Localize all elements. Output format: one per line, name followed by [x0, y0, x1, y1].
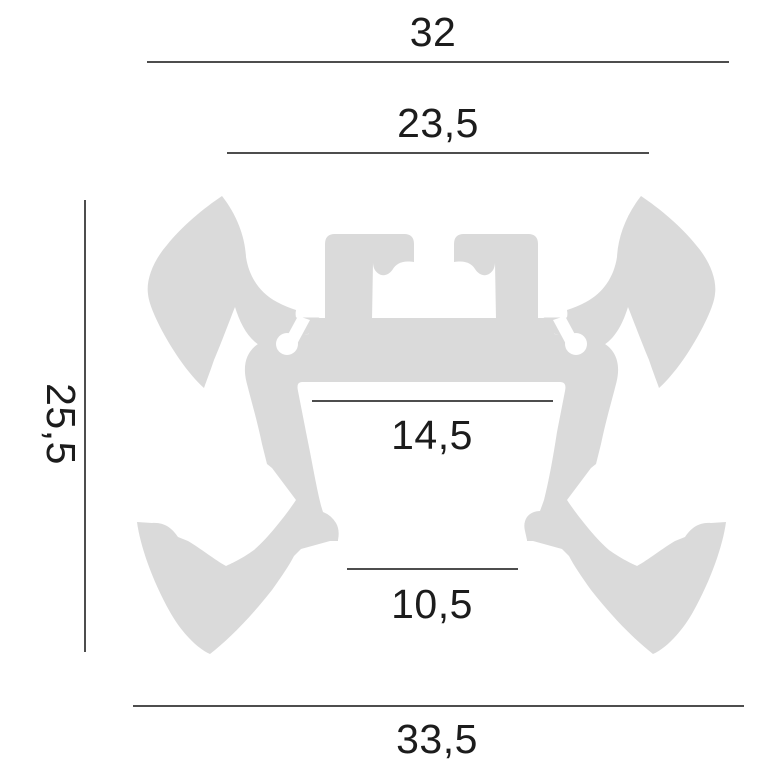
profile-dimension-drawing: 32 23,5 25,5 14,5 10,5 33,5 [0, 0, 766, 766]
right-screw-hole [565, 333, 587, 355]
left-slot-tower [325, 234, 414, 320]
label-height: 25,5 [38, 383, 84, 465]
right-pocket-cutout [543, 300, 567, 318]
label-overall-width-bottom: 33,5 [396, 716, 478, 762]
label-inner-width-top: 23,5 [397, 100, 479, 146]
technical-drawing-canvas: 32 23,5 25,5 14,5 10,5 33,5 [0, 0, 766, 766]
left-pocket-cutout [296, 300, 320, 318]
left-screw-hole [276, 333, 298, 355]
label-cavity-width: 14,5 [391, 412, 473, 458]
label-overall-width-top: 32 [410, 9, 457, 55]
label-bottom-opening: 10,5 [391, 581, 473, 627]
right-slot-tower [454, 234, 538, 320]
